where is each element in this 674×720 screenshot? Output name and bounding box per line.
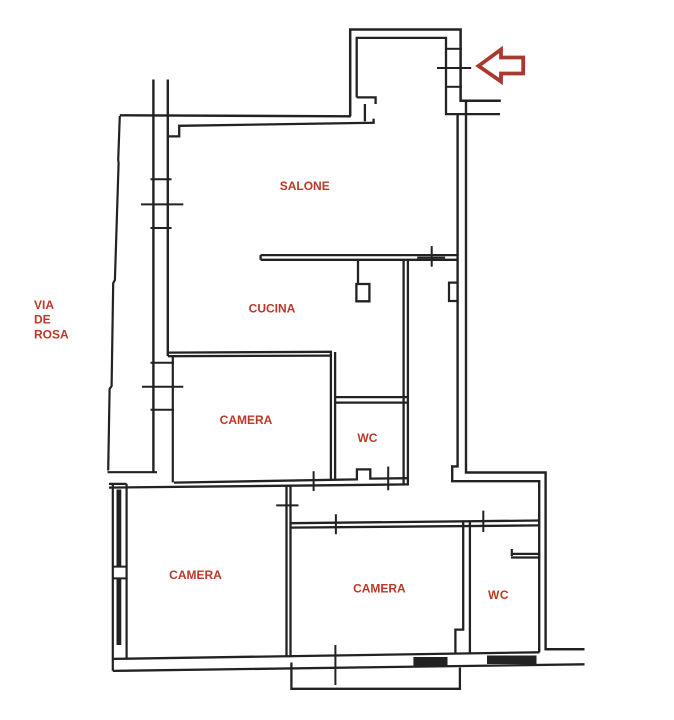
- svg-text:VIA: VIA: [34, 298, 54, 312]
- svg-text:WC: WC: [357, 431, 377, 445]
- svg-text:CUCINA: CUCINA: [249, 302, 296, 316]
- svg-text:WC: WC: [488, 588, 509, 602]
- svg-text:ROSA: ROSA: [34, 327, 69, 341]
- svg-text:CAMERA: CAMERA: [169, 568, 222, 582]
- svg-text:CAMERA: CAMERA: [353, 581, 406, 595]
- svg-text:DE: DE: [34, 313, 51, 327]
- svg-text:SALONE: SALONE: [280, 179, 330, 193]
- svg-text:CAMERA: CAMERA: [220, 413, 273, 427]
